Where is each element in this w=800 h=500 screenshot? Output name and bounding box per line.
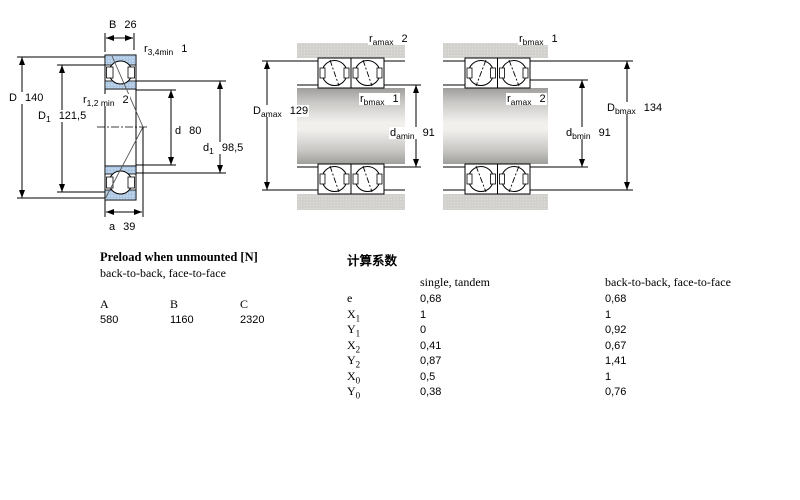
preload-col-b: B [170, 297, 240, 312]
dim-label-ramax-right: ramax2 [506, 93, 547, 105]
dim-label-d: d80 [174, 125, 202, 137]
factor-row: X00,51 [347, 369, 777, 385]
calculation-factors-table: 计算系数 single, tandem back-to-back, face-t… [347, 250, 777, 400]
dim-label-Dbmax: Dbmax134 [606, 102, 663, 114]
bearing-pair-bottom [465, 164, 530, 194]
preload-values: 58011602320 [100, 314, 340, 326]
preload-table: Preload when unmounted [N] back-to-back,… [100, 250, 340, 326]
bearing-pair-top [465, 58, 530, 88]
factors-title: 计算系数 [347, 250, 777, 269]
factors-col-single-tandem: single, tandem [420, 275, 490, 290]
factors-col-b2b-f2f: back-to-back, face-to-face [605, 275, 731, 290]
factor-row: e0,680,68 [347, 291, 777, 307]
bearing-pair-top [318, 58, 384, 88]
bearing-pair-bottom [318, 164, 384, 194]
bearing-spec-page: B26 r3,4min1 D140 D1121,5 r1,2 min2 d80 … [0, 0, 800, 500]
dim-label-dbmin: dbmin91 [565, 127, 612, 139]
dim-label-damin: damin91 [389, 127, 436, 139]
preload-title: Preload when unmounted [N] [100, 250, 340, 265]
dim-label-r12: r1,2 min2 [82, 94, 130, 106]
preload-value-c: 2320 [240, 314, 310, 326]
factor-row: X20,410,67 [347, 338, 777, 354]
preload-col-a: A [100, 297, 170, 312]
dim-label-Damax: Damax129 [252, 105, 309, 117]
dim-label-a: a39 [108, 221, 136, 233]
dim-label-rbmax-right: rbmax1 [518, 33, 559, 45]
factors-column-headers: single, tandem back-to-back, face-to-fac… [347, 275, 777, 291]
factor-row: X111 [347, 307, 777, 323]
factor-row: Y00,380,76 [347, 384, 777, 400]
dim-label-B: B26 [108, 19, 138, 31]
preload-value-a: 580 [100, 314, 170, 326]
bearing-cross-section [105, 55, 136, 200]
preload-value-b: 1160 [170, 314, 240, 326]
factor-row: Y20,871,41 [347, 353, 777, 369]
dim-label-rbmax-left: rbmax1 [359, 93, 400, 105]
preload-subtitle: back-to-back, face-to-face [100, 266, 340, 281]
factor-row: Y100,92 [347, 322, 777, 338]
dim-label-D1: D1121,5 [37, 110, 87, 122]
dim-label-d1: d198,5 [202, 142, 244, 154]
preload-column-headers: ABC [100, 297, 340, 312]
preload-col-c: C [240, 297, 310, 312]
dim-label-r34: r3,4min1 [143, 43, 188, 55]
dim-label-ramax-left: ramax2 [368, 33, 409, 45]
dim-label-D: D140 [8, 92, 44, 104]
